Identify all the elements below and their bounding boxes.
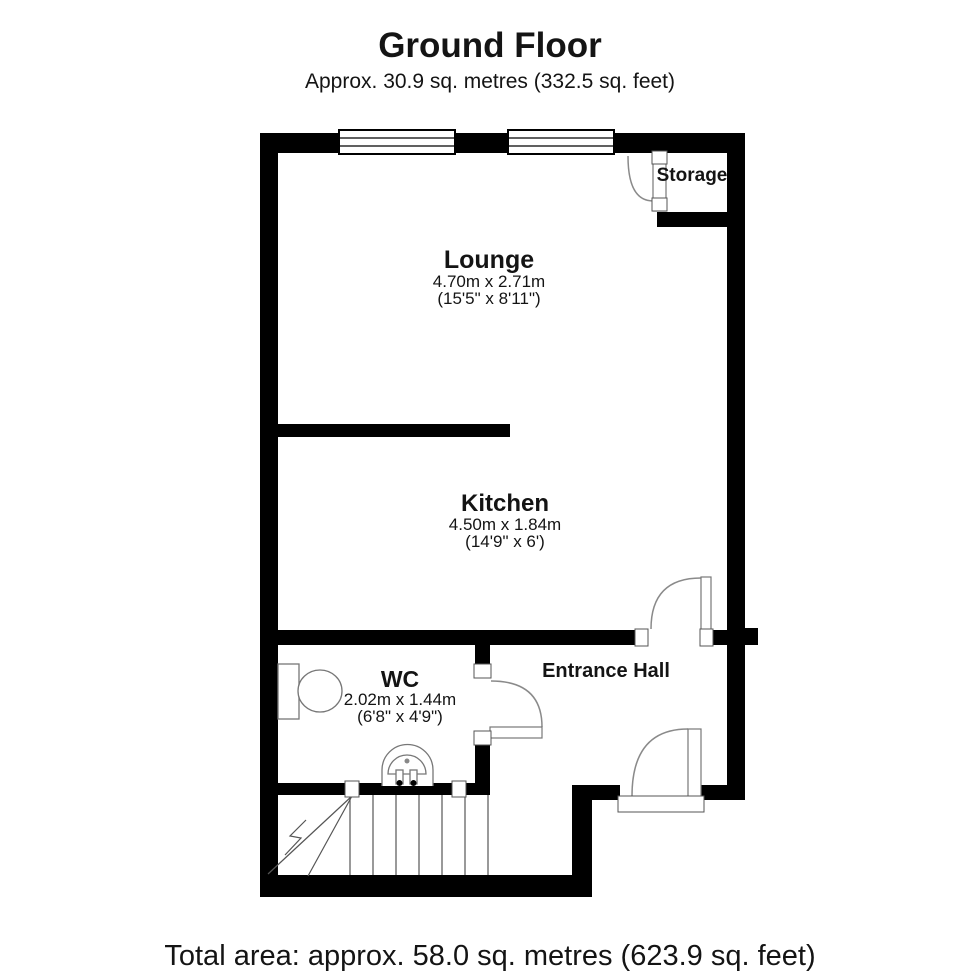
- storage-name: Storage: [657, 166, 728, 186]
- wall-kitchen-hall-left: [260, 630, 635, 645]
- lounge-dimensions-metric: 4.70m x 2.71m: [433, 273, 545, 290]
- wall-bottom: [260, 875, 592, 897]
- toilet: [278, 664, 342, 719]
- kitchen-dimensions-imperial: (14'9" x 6'): [449, 533, 561, 550]
- toilet-bowl: [298, 670, 342, 712]
- storage-door-jamb-top: [652, 151, 667, 164]
- room-label-entrance-hall: Entrance Hall: [541, 661, 671, 681]
- room-label-kitchen: Kitchen 4.50m x 1.84m (14'9" x 6'): [449, 491, 561, 550]
- wall-left: [260, 133, 278, 897]
- kitchen-name: Kitchen: [449, 491, 561, 516]
- sink: [382, 745, 433, 787]
- wc-door-jamb-top: [474, 664, 491, 678]
- window-top-right: [508, 130, 614, 154]
- wc-dimensions-metric: 2.02m x 1.44m: [344, 691, 456, 708]
- window-top-left: [339, 130, 455, 154]
- wall-lounge-kitchen: [260, 424, 510, 437]
- wall-right: [727, 133, 745, 800]
- sink-tap-handle-left: [397, 780, 403, 786]
- storage-door-arc: [628, 156, 653, 201]
- kitchen-door-jamb-left: [635, 629, 648, 646]
- front-door-leaf: [688, 729, 701, 797]
- entrance-hall-name: Entrance Hall: [541, 661, 671, 681]
- storage-door-jamb-bottom: [652, 198, 667, 211]
- wc-dimensions-imperial: (6'8" x 4'9"): [344, 708, 456, 725]
- room-label-lounge: Lounge 4.70m x 2.71m (15'5" x 8'11"): [433, 247, 545, 307]
- room-label-wc: WC 2.02m x 1.44m (6'8" x 4'9"): [344, 667, 456, 725]
- wc-door-leaf: [490, 727, 542, 738]
- floorplan-page: Ground Floor Approx. 30.9 sq. metres (33…: [0, 0, 980, 980]
- stairs: [268, 795, 488, 876]
- wall-top: [260, 133, 745, 153]
- stair-direction-arrow: [268, 796, 352, 876]
- wc-door-jamb-bottom: [474, 731, 491, 745]
- wall-kitchen-hall-right: [712, 630, 745, 645]
- wall-front-left: [572, 785, 620, 800]
- lounge-name: Lounge: [433, 247, 545, 273]
- sink-tap-handle-right: [411, 780, 417, 786]
- kitchen-dimensions-metric: 4.50m x 1.84m: [449, 516, 561, 533]
- stair-newel-left: [345, 781, 359, 797]
- room-label-storage: Storage: [657, 166, 728, 186]
- wall-front-right: [700, 785, 745, 800]
- kitchen-door-leaf: [701, 577, 711, 632]
- front-door-threshold: [618, 796, 704, 812]
- wall-step-vertical: [572, 785, 592, 897]
- wall-exterior-nub: [745, 628, 758, 645]
- floor-plan: Lounge 4.70m x 2.71m (15'5" x 8'11") Kit…: [0, 0, 980, 980]
- total-area-text: Total area: approx. 58.0 sq. metres (623…: [0, 940, 980, 973]
- wc-name: WC: [344, 667, 456, 691]
- toilet-cistern: [278, 664, 299, 719]
- wall-storage-stub: [657, 212, 745, 227]
- lounge-dimensions-imperial: (15'5" x 8'11"): [433, 290, 545, 307]
- kitchen-door-arc: [651, 578, 701, 629]
- wc-door-arc: [491, 681, 542, 727]
- sink-drain: [405, 759, 410, 764]
- kitchen-door-jamb-right: [700, 629, 713, 646]
- front-door-arc: [632, 729, 688, 796]
- stair-newel-right: [452, 781, 466, 797]
